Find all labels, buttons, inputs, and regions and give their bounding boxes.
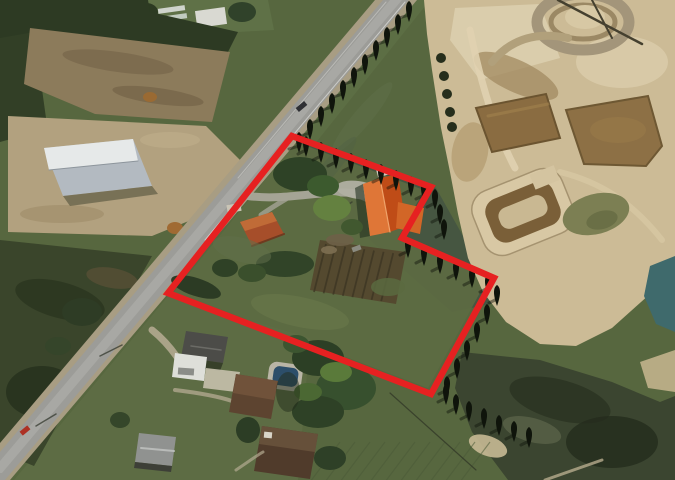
roadside-tree-2 <box>45 337 71 355</box>
pond-east-sheen <box>590 117 646 143</box>
garage-white <box>172 353 207 381</box>
house3-tree-2 <box>314 446 346 470</box>
house3-tree-1 <box>236 417 260 443</box>
roadside-tree-1 <box>62 298 102 326</box>
tree-light <box>313 195 351 221</box>
rust-tree-1 <box>143 92 157 102</box>
tree-n2 <box>307 175 339 197</box>
pad-mottle-1 <box>20 205 104 223</box>
farm-tree-2 <box>228 2 256 22</box>
tree-s3 <box>212 259 238 277</box>
aerial-photo <box>0 0 675 480</box>
grove-shadow <box>276 372 300 412</box>
garage-door <box>178 367 194 375</box>
tree-s2 <box>238 264 266 282</box>
yard-junk-1 <box>326 234 354 246</box>
grove-3 <box>292 396 344 428</box>
wash-center-mound <box>565 5 605 29</box>
tree-small-1 <box>341 219 363 235</box>
house3-dormer <box>264 432 272 439</box>
yard-junk-2 <box>321 246 337 254</box>
aerial-map-view <box>0 0 675 480</box>
pad-mottle-2 <box>140 132 200 148</box>
yard-tree-1 <box>110 412 130 428</box>
se-dark-2 <box>566 416 658 468</box>
garden-green <box>371 278 405 296</box>
